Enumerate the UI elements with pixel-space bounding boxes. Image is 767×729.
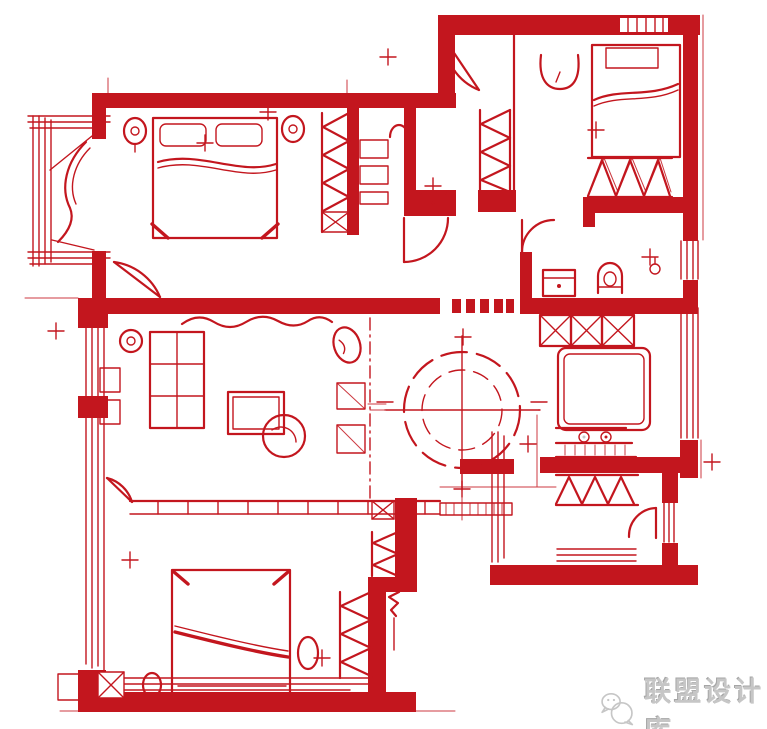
- bed: [152, 118, 278, 238]
- door-swing: [629, 508, 656, 538]
- partition-tv-wall: [130, 501, 512, 515]
- hall-cabinet: [360, 125, 408, 204]
- dining-table: [370, 336, 556, 490]
- bathroom-sink: [543, 270, 575, 296]
- watermark-text: 联盟设计库: [644, 670, 767, 729]
- coffee-table: [100, 368, 305, 457]
- door-swing: [540, 55, 578, 89]
- door-swing: [404, 218, 448, 262]
- wardrobe-zigzag: [340, 592, 371, 678]
- bathtub: [558, 348, 650, 430]
- toilet: [598, 263, 622, 293]
- electrical-squiggle: [389, 583, 399, 650]
- wardrobe-zigzag: [588, 158, 672, 197]
- bed: [592, 45, 680, 157]
- floor-plan-page: 联盟设计库: [0, 0, 767, 729]
- double-sink-counter: [556, 428, 636, 457]
- watermark: 联盟设计库: [598, 670, 767, 729]
- wardrobe-zigzag: [372, 532, 398, 576]
- furniture: [100, 45, 680, 697]
- fixture: [650, 258, 660, 274]
- storage-x-hatch: [540, 315, 634, 346]
- column-x-box: [372, 501, 394, 519]
- door-swing: [114, 262, 160, 297]
- sofa: [120, 317, 365, 453]
- floor-plan-sketch: [0, 0, 767, 729]
- curtain-sketch: [50, 136, 94, 250]
- chat-bubbles-icon: [598, 686, 637, 729]
- door-swing: [107, 478, 132, 502]
- wardrobe-zigzag: [556, 475, 638, 505]
- wardrobe-zigzag: [322, 113, 349, 232]
- door-swing: [522, 220, 554, 252]
- wardrobe-zigzag: [480, 110, 510, 192]
